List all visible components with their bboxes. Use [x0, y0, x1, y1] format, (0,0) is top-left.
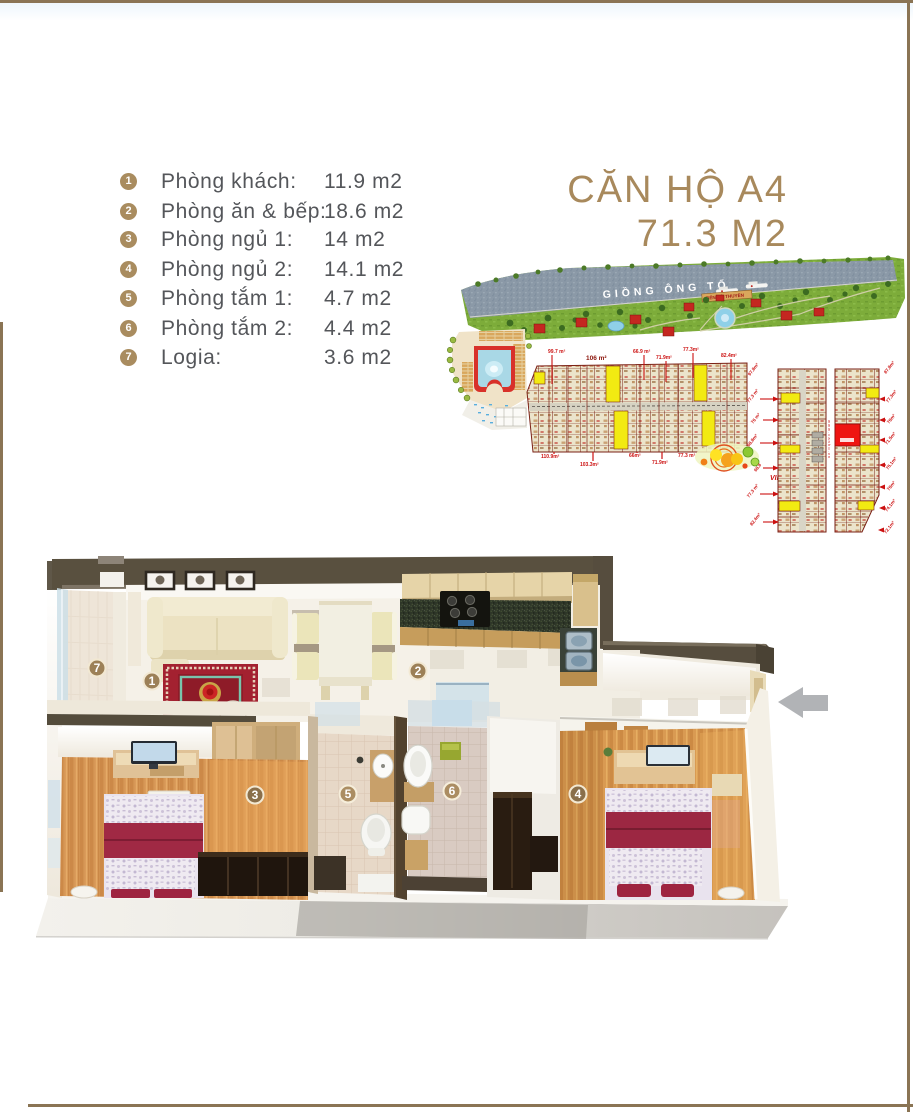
- svg-text:66.9 m²: 66.9 m²: [633, 349, 651, 355]
- svg-text:4: 4: [575, 787, 582, 801]
- svg-text:87.8m²: 87.8m²: [883, 360, 896, 375]
- svg-text:76m²: 76m²: [886, 413, 897, 425]
- svg-text:99.7 m²: 99.7 m²: [548, 349, 566, 355]
- svg-text:72.1m²: 72.1m²: [883, 520, 896, 535]
- svg-text:71.9m²: 71.9m²: [652, 460, 668, 466]
- svg-text:106 m²: 106 m²: [586, 355, 607, 362]
- svg-text:6: 6: [449, 784, 456, 798]
- svg-text:82.4m²: 82.4m²: [749, 512, 762, 527]
- svg-text:71.9m²: 71.9m²: [656, 355, 672, 361]
- svg-text:1: 1: [149, 674, 156, 688]
- svg-text:71.5m²: 71.5m²: [884, 431, 897, 446]
- svg-text:3: 3: [252, 788, 259, 802]
- svg-text:103.3m²: 103.3m²: [580, 462, 599, 468]
- svg-text:w w w . c a n h o . v n: w w w . c a n h o . v n: [827, 420, 832, 458]
- svg-text:110.9m²: 110.9m²: [541, 454, 560, 460]
- svg-text:2: 2: [415, 664, 422, 678]
- svg-text:76 m²: 76 m²: [750, 412, 762, 425]
- svg-text:77.3 m²: 77.3 m²: [746, 388, 760, 404]
- svg-text:74.1m²: 74.1m²: [884, 498, 897, 513]
- svg-text:76m²: 76m²: [886, 480, 897, 492]
- svg-text:77.3m²: 77.3m²: [683, 347, 699, 353]
- svg-text:7: 7: [94, 661, 101, 675]
- svg-text:68.8m²: 68.8m²: [746, 433, 759, 448]
- svg-text:97.8m²: 97.8m²: [747, 362, 760, 377]
- svg-text:77.3 m²: 77.3 m²: [678, 453, 696, 459]
- svg-text:77.3 m²: 77.3 m²: [746, 483, 760, 499]
- svg-text:5: 5: [345, 787, 352, 801]
- svg-text:77.3m²: 77.3m²: [885, 389, 898, 404]
- svg-text:82.4m²: 82.4m²: [721, 353, 737, 359]
- svg-text:66m²: 66m²: [629, 453, 641, 459]
- svg-text:75.1m²: 75.1m²: [885, 456, 898, 471]
